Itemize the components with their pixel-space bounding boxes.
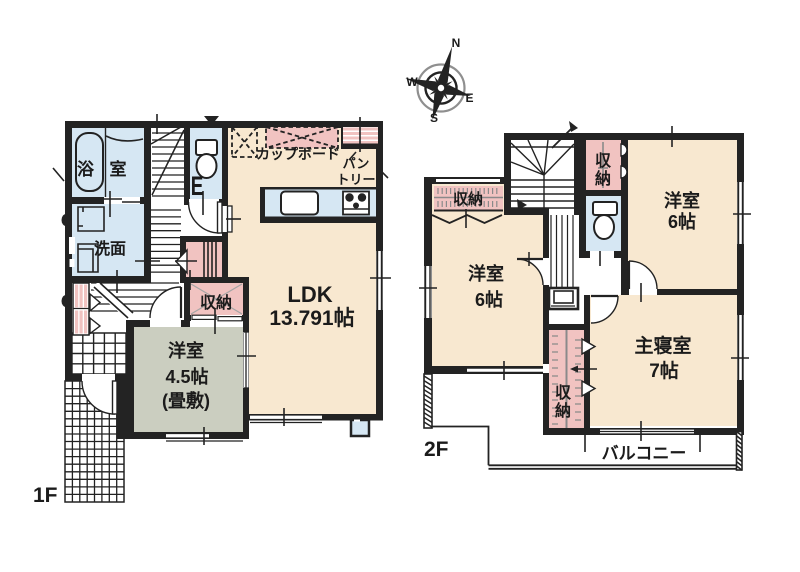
svg-text:収: 収 (595, 152, 612, 170)
svg-text:E: E (191, 171, 204, 201)
svg-text:洋室: 洋室 (168, 340, 204, 361)
svg-text:収納: 収納 (453, 190, 483, 208)
svg-text:N: N (452, 36, 461, 50)
svg-text:浴: 浴 (77, 159, 95, 179)
svg-text:6帖: 6帖 (668, 211, 696, 232)
svg-text:1F: 1F (33, 484, 58, 507)
svg-text:室: 室 (110, 159, 127, 179)
svg-text:カップボード: カップボード (256, 146, 340, 162)
svg-text:トリー: トリー (336, 172, 375, 187)
svg-text:洋室: 洋室 (664, 190, 700, 211)
svg-text:LDK: LDK (287, 282, 332, 307)
svg-text:収: 収 (555, 384, 572, 402)
svg-text:洋室: 洋室 (468, 263, 504, 284)
svg-text:4.5帖: 4.5帖 (165, 366, 208, 387)
svg-text:納: 納 (595, 169, 611, 188)
svg-text:(畳敷): (畳敷) (162, 390, 210, 411)
svg-text:バルコニー: バルコニー (602, 444, 687, 463)
svg-text:E: E (465, 91, 473, 105)
svg-text:7帖: 7帖 (649, 359, 679, 382)
svg-text:6帖: 6帖 (475, 289, 503, 310)
svg-text:収納: 収納 (200, 293, 232, 312)
svg-text:S: S (430, 111, 438, 125)
svg-text:主寝室: 主寝室 (634, 334, 691, 357)
svg-text:納: 納 (555, 401, 571, 420)
svg-text:W: W (406, 75, 418, 89)
svg-text:パン: パン (343, 156, 370, 171)
svg-text:洗面: 洗面 (94, 239, 126, 258)
svg-text:2F: 2F (424, 438, 449, 461)
svg-text:13.791帖: 13.791帖 (269, 307, 354, 330)
